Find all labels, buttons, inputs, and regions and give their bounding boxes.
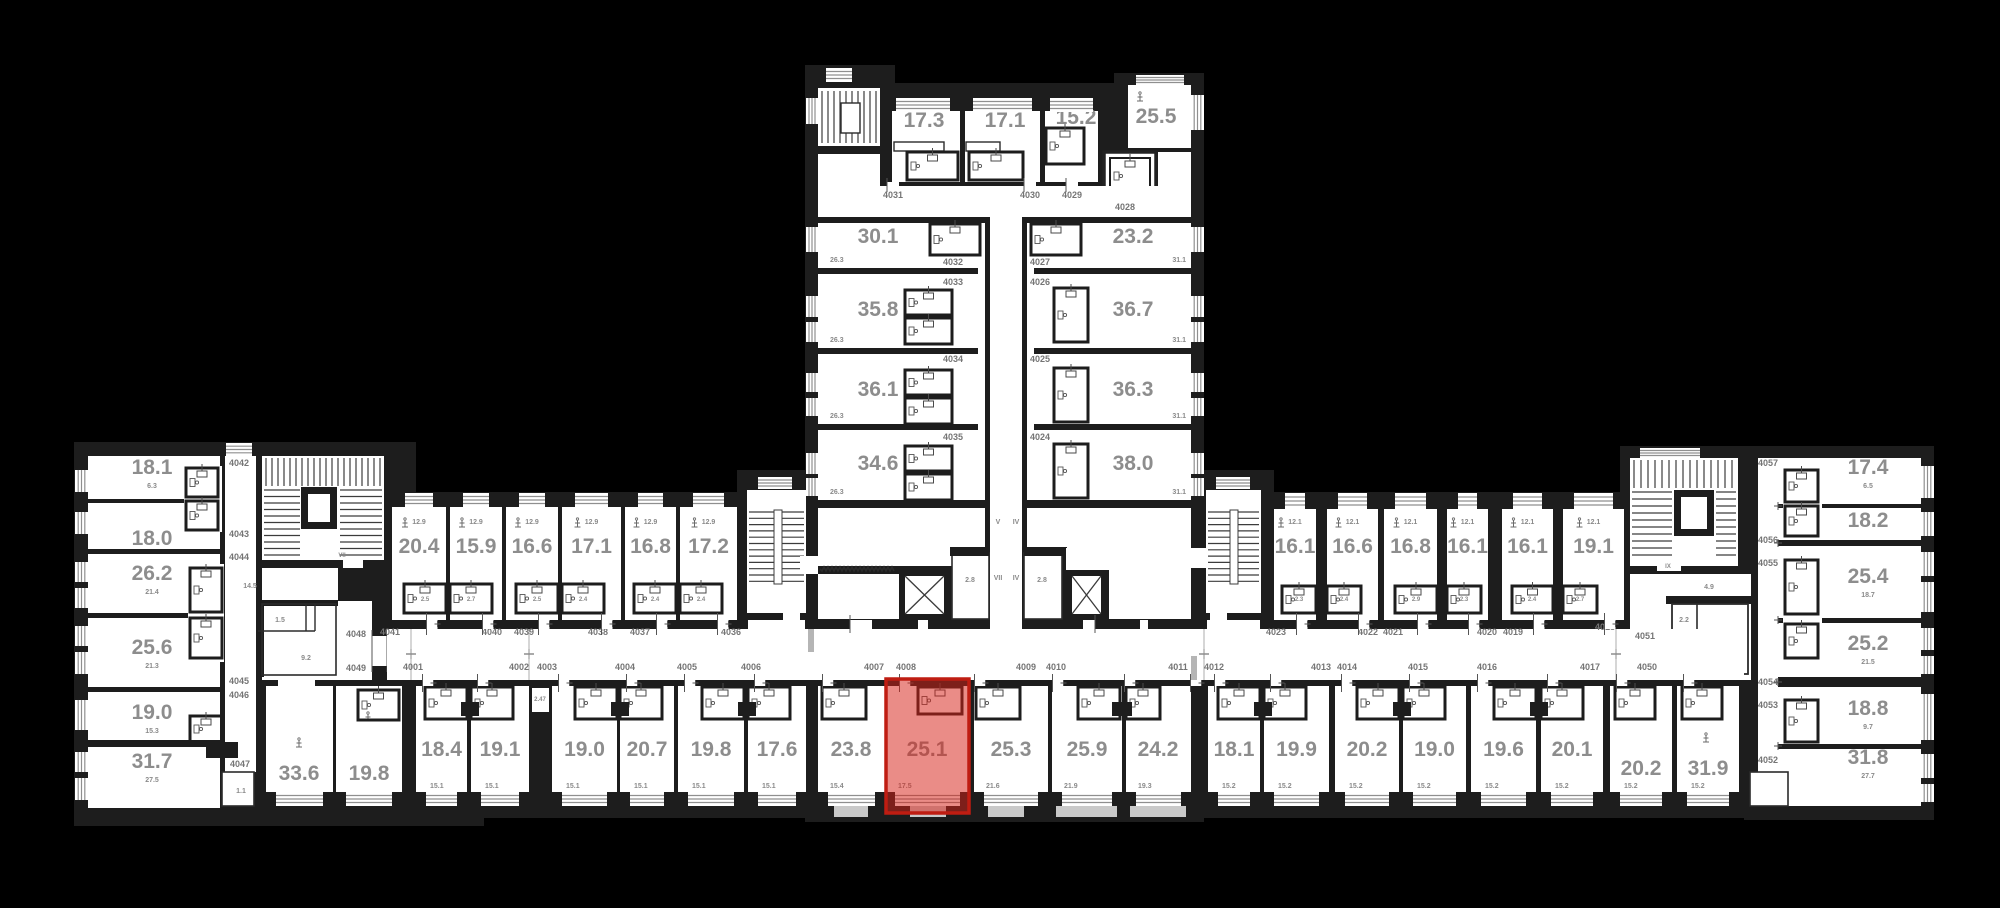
svg-text:12.1: 12.1 (1587, 519, 1601, 526)
svg-text:12.1: 12.1 (1404, 519, 1418, 526)
svg-text:26.3: 26.3 (830, 337, 844, 344)
svg-text:2.5: 2.5 (421, 597, 430, 603)
svg-text:2.47: 2.47 (534, 697, 546, 703)
svg-text:4055: 4055 (1758, 558, 1778, 568)
svg-text:20.2: 20.2 (1621, 757, 1662, 780)
svg-text:14.5: 14.5 (243, 583, 257, 590)
svg-text:16.1: 16.1 (1275, 535, 1316, 558)
svg-text:36.3: 36.3 (1113, 378, 1154, 401)
svg-text:36.1: 36.1 (858, 378, 899, 401)
svg-text:26.2: 26.2 (132, 562, 173, 585)
svg-text:2.3: 2.3 (1295, 597, 1304, 603)
svg-text:16.1: 16.1 (1507, 535, 1548, 558)
svg-text:VII: VII (994, 575, 1003, 582)
svg-text:19.6: 19.6 (1483, 738, 1524, 761)
svg-text:31.7: 31.7 (132, 750, 173, 773)
svg-text:24.2: 24.2 (1138, 738, 1179, 761)
svg-text:4008: 4008 (896, 662, 916, 672)
svg-text:4043: 4043 (229, 529, 249, 539)
svg-text:15.2: 15.2 (1691, 783, 1705, 790)
svg-text:17.3: 17.3 (904, 109, 945, 132)
svg-text:V: V (996, 519, 1001, 526)
svg-text:4014: 4014 (1337, 662, 1357, 672)
svg-text:4048: 4048 (346, 629, 366, 639)
svg-text:4021: 4021 (1383, 627, 1403, 637)
svg-text:18.0: 18.0 (132, 527, 173, 550)
svg-text:4042: 4042 (229, 458, 249, 468)
svg-text:4057: 4057 (1758, 458, 1778, 468)
svg-text:4045: 4045 (229, 676, 249, 686)
svg-text:21.9: 21.9 (1064, 783, 1078, 790)
svg-text:20.1: 20.1 (1552, 738, 1593, 761)
svg-text:15.1: 15.1 (430, 783, 444, 790)
svg-text:31.8: 31.8 (1848, 746, 1889, 769)
svg-text:30.1: 30.1 (858, 225, 899, 248)
svg-text:31.1: 31.1 (1172, 337, 1186, 344)
svg-text:4005: 4005 (677, 662, 697, 672)
svg-text:16.1: 16.1 (1447, 535, 1488, 558)
svg-text:4013: 4013 (1311, 662, 1331, 672)
svg-text:35.8: 35.8 (858, 298, 899, 321)
svg-text:15.4: 15.4 (830, 783, 844, 790)
svg-text:12.9: 12.9 (702, 519, 716, 526)
svg-text:19.3: 19.3 (1138, 783, 1152, 790)
svg-text:9.7: 9.7 (1863, 724, 1873, 731)
svg-text:2.5: 2.5 (533, 597, 542, 603)
svg-text:21.3: 21.3 (145, 663, 159, 670)
svg-text:4015: 4015 (1408, 662, 1428, 672)
svg-text:21.4: 21.4 (145, 589, 159, 596)
svg-text:4037: 4037 (630, 627, 650, 637)
svg-text:4017: 4017 (1580, 662, 1600, 672)
svg-text:4044: 4044 (229, 552, 249, 562)
svg-text:17.6: 17.6 (757, 738, 798, 761)
svg-text:19.9: 19.9 (1276, 738, 1317, 761)
svg-text:4030: 4030 (1020, 190, 1040, 200)
svg-text:2.4: 2.4 (1528, 597, 1537, 603)
svg-text:4034: 4034 (943, 354, 963, 364)
svg-text:18.1: 18.1 (132, 456, 173, 479)
svg-text:2.3: 2.3 (1460, 597, 1469, 603)
svg-text:2.9: 2.9 (1412, 597, 1421, 603)
svg-text:15.2: 15.2 (1278, 783, 1292, 790)
svg-text:4033: 4033 (943, 277, 963, 287)
svg-text:15.1: 15.1 (566, 783, 580, 790)
svg-text:2.7: 2.7 (467, 597, 476, 603)
svg-text:2.2: 2.2 (1679, 617, 1689, 624)
svg-text:15.1: 15.1 (762, 783, 776, 790)
svg-text:31.9: 31.9 (1688, 757, 1729, 780)
svg-text:4007: 4007 (864, 662, 884, 672)
svg-text:4052: 4052 (1758, 755, 1778, 765)
svg-text:4023: 4023 (1266, 627, 1286, 637)
svg-text:2.4: 2.4 (1340, 597, 1349, 603)
svg-text:15.2: 15.2 (1417, 783, 1431, 790)
svg-text:2.4: 2.4 (579, 597, 588, 603)
svg-text:4024: 4024 (1030, 432, 1050, 442)
svg-text:4053: 4053 (1758, 700, 1778, 710)
svg-text:19.1: 19.1 (1573, 535, 1614, 558)
svg-text:38.0: 38.0 (1113, 452, 1154, 475)
svg-text:18.1: 18.1 (1214, 738, 1255, 761)
svg-text:4010: 4010 (1046, 662, 1066, 672)
svg-text:2.8: 2.8 (1037, 577, 1047, 584)
svg-text:19.8: 19.8 (691, 738, 732, 761)
svg-text:15.9: 15.9 (456, 535, 497, 558)
svg-text:17.1: 17.1 (985, 109, 1026, 132)
svg-text:21.6: 21.6 (986, 783, 1000, 790)
svg-text:4009: 4009 (1016, 662, 1036, 672)
svg-text:17.4: 17.4 (1848, 456, 1889, 479)
svg-text:4050: 4050 (1637, 662, 1657, 672)
svg-text:19.0: 19.0 (1414, 738, 1455, 761)
svg-text:31.1: 31.1 (1172, 413, 1186, 420)
svg-text:2.4: 2.4 (651, 597, 660, 603)
svg-text:4027: 4027 (1030, 257, 1050, 267)
svg-text:4031: 4031 (883, 190, 903, 200)
svg-text:25.9: 25.9 (1067, 738, 1108, 761)
svg-text:26.3: 26.3 (830, 489, 844, 496)
svg-text:4001: 4001 (403, 662, 423, 672)
svg-text:15.2: 15.2 (1349, 783, 1363, 790)
svg-text:25.6: 25.6 (132, 636, 173, 659)
svg-text:19.8: 19.8 (349, 762, 390, 785)
svg-text:12.9: 12.9 (469, 519, 483, 526)
svg-text:17.1: 17.1 (571, 535, 612, 558)
svg-text:IV: IV (1013, 519, 1020, 526)
svg-text:2.8: 2.8 (965, 577, 975, 584)
svg-text:23.8: 23.8 (831, 738, 872, 761)
svg-text:19.1: 19.1 (480, 738, 521, 761)
svg-text:34.6: 34.6 (858, 452, 899, 475)
svg-text:16.6: 16.6 (512, 535, 553, 558)
svg-text:16.8: 16.8 (1390, 535, 1431, 558)
svg-text:20.2: 20.2 (1347, 738, 1388, 761)
svg-text:26.3: 26.3 (830, 413, 844, 420)
svg-text:2.4: 2.4 (697, 597, 706, 603)
svg-text:4028: 4028 (1115, 202, 1135, 212)
svg-text:33.6: 33.6 (279, 762, 320, 785)
svg-text:12.9: 12.9 (585, 519, 599, 526)
svg-text:20.7: 20.7 (627, 738, 668, 761)
svg-text:23.2: 23.2 (1113, 225, 1154, 248)
svg-text:6.3: 6.3 (147, 483, 157, 490)
svg-text:4049: 4049 (346, 663, 366, 673)
svg-text:18.8: 18.8 (1848, 697, 1889, 720)
svg-text:12.9: 12.9 (644, 519, 658, 526)
svg-text:12.9: 12.9 (525, 519, 539, 526)
svg-text:19.0: 19.0 (132, 701, 173, 724)
svg-text:15.1: 15.1 (692, 783, 706, 790)
svg-text:19.0: 19.0 (564, 738, 605, 761)
svg-text:2.7: 2.7 (1576, 597, 1585, 603)
svg-text:15.2: 15.2 (1624, 783, 1638, 790)
svg-text:VII: VII (338, 553, 346, 559)
svg-text:4029: 4029 (1062, 190, 1082, 200)
svg-text:12.1: 12.1 (1346, 519, 1360, 526)
svg-text:25.2: 25.2 (1848, 632, 1889, 655)
svg-text:IV: IV (1013, 575, 1020, 582)
svg-text:27.7: 27.7 (1861, 773, 1875, 780)
svg-text:15.1: 15.1 (634, 783, 648, 790)
svg-text:15.2: 15.2 (1485, 783, 1499, 790)
svg-text:26.3: 26.3 (830, 257, 844, 264)
svg-text:16.6: 16.6 (1332, 535, 1373, 558)
svg-text:25.3: 25.3 (991, 738, 1032, 761)
svg-text:15.1: 15.1 (485, 783, 499, 790)
svg-text:4019: 4019 (1503, 627, 1523, 637)
svg-text:15.2: 15.2 (1222, 783, 1236, 790)
svg-text:4004: 4004 (615, 662, 635, 672)
svg-text:4026: 4026 (1030, 277, 1050, 287)
svg-text:15.3: 15.3 (145, 728, 159, 735)
svg-text:18.2: 18.2 (1848, 509, 1889, 532)
svg-text:31.1: 31.1 (1172, 257, 1186, 264)
svg-text:18.4: 18.4 (421, 738, 462, 761)
svg-text:9.2: 9.2 (301, 655, 311, 662)
svg-text:20.4: 20.4 (399, 535, 440, 558)
svg-text:4032: 4032 (943, 257, 963, 267)
svg-text:4020: 4020 (1477, 627, 1497, 637)
svg-text:4047: 4047 (230, 759, 250, 769)
svg-text:4012: 4012 (1204, 662, 1224, 672)
svg-text:16.8: 16.8 (630, 535, 671, 558)
svg-text:4039: 4039 (514, 627, 534, 637)
svg-text:12.1: 12.1 (1288, 519, 1302, 526)
svg-text:4051: 4051 (1635, 631, 1655, 641)
svg-text:12.9: 12.9 (412, 519, 426, 526)
svg-text:25.5: 25.5 (1136, 105, 1177, 128)
svg-text:15.2: 15.2 (1555, 783, 1569, 790)
svg-text:4002: 4002 (509, 662, 529, 672)
svg-text:IX: IX (1665, 564, 1671, 570)
svg-text:4041: 4041 (380, 627, 400, 637)
svg-text:4011: 4011 (1168, 662, 1188, 672)
svg-text:31.1: 31.1 (1172, 489, 1186, 496)
svg-text:6.5: 6.5 (1863, 483, 1873, 490)
svg-text:4046: 4046 (229, 690, 249, 700)
svg-text:4006: 4006 (741, 662, 761, 672)
svg-text:36.7: 36.7 (1113, 298, 1154, 321)
svg-text:4.9: 4.9 (1704, 584, 1714, 591)
svg-text:4003: 4003 (537, 662, 557, 672)
svg-text:27.5: 27.5 (145, 777, 159, 784)
svg-text:18.7: 18.7 (1861, 592, 1875, 599)
svg-text:12.1: 12.1 (1461, 519, 1475, 526)
svg-text:25.4: 25.4 (1848, 565, 1889, 588)
svg-text:12.1: 12.1 (1521, 519, 1535, 526)
svg-text:1.1: 1.1 (236, 788, 246, 795)
svg-text:17.2: 17.2 (688, 535, 729, 558)
svg-text:4016: 4016 (1477, 662, 1497, 672)
svg-text:1.5: 1.5 (275, 617, 285, 624)
svg-text:21.5: 21.5 (1861, 659, 1875, 666)
svg-text:4035: 4035 (943, 432, 963, 442)
